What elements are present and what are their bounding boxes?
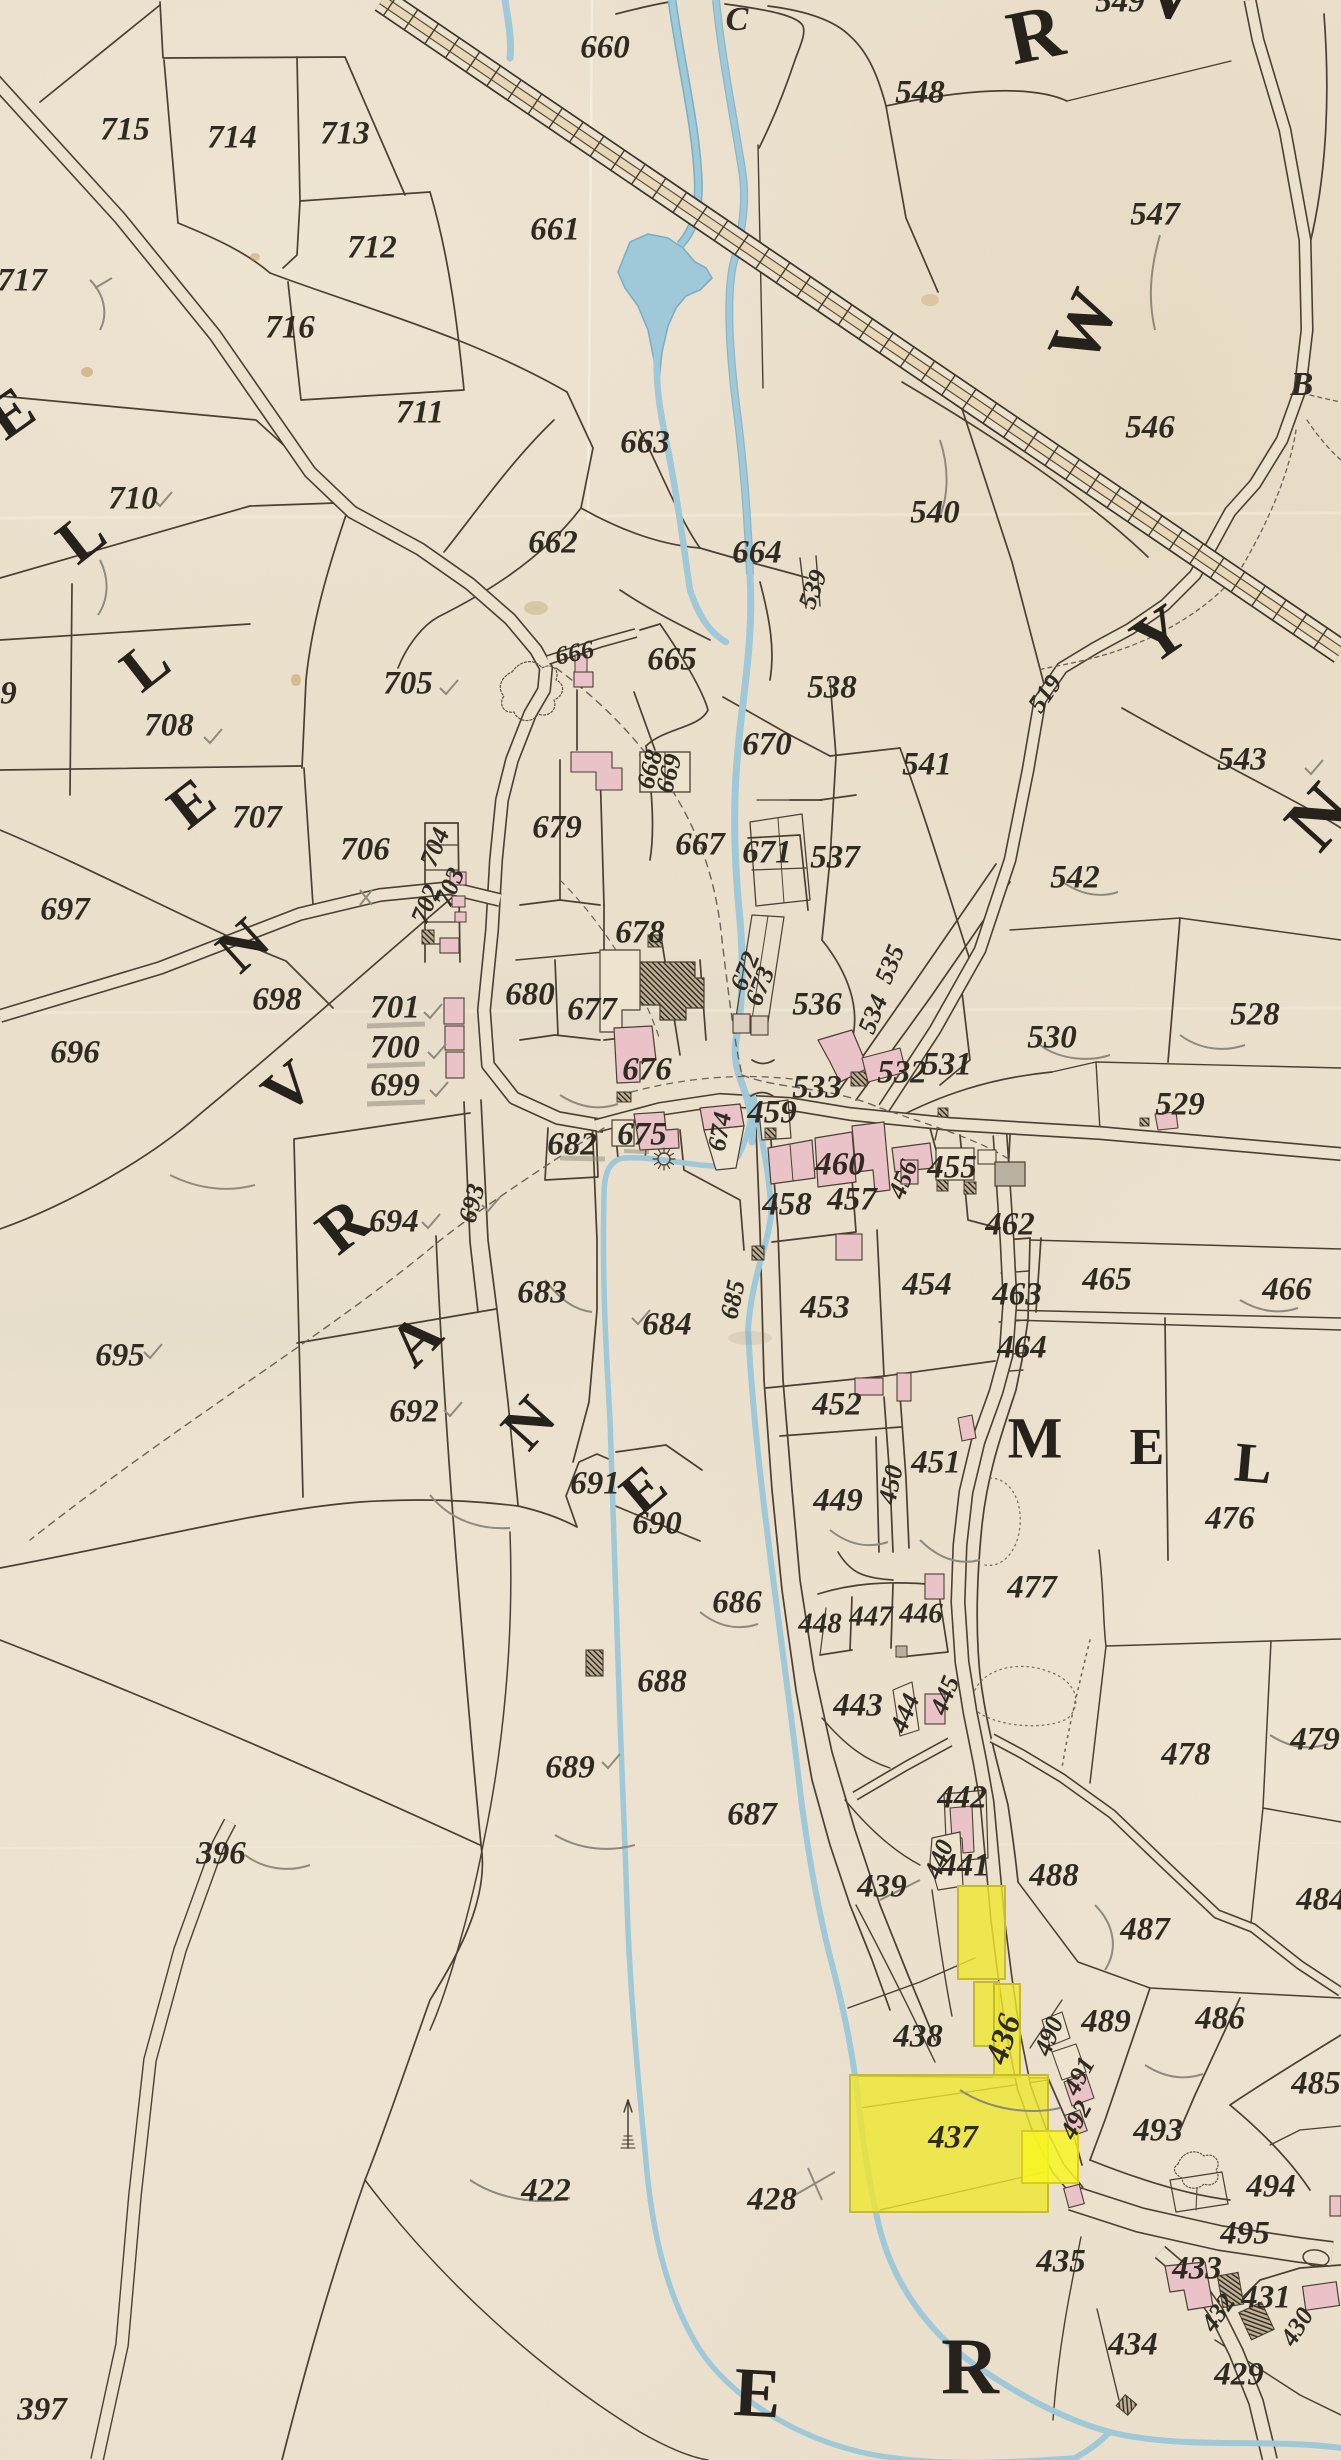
svg-text:698: 698 <box>252 982 302 1018</box>
svg-text:696: 696 <box>50 1035 100 1071</box>
svg-text:547: 547 <box>1130 197 1181 233</box>
svg-text:L: L <box>1232 1431 1275 1496</box>
svg-text:686: 686 <box>712 1585 762 1621</box>
svg-text:541: 541 <box>902 747 952 783</box>
svg-text:717: 717 <box>0 263 48 299</box>
svg-text:663: 663 <box>620 425 670 461</box>
svg-text:667: 667 <box>675 827 726 863</box>
svg-text:542: 542 <box>1050 860 1100 896</box>
svg-text:660: 660 <box>580 30 630 66</box>
svg-text:484: 484 <box>1295 1882 1341 1918</box>
svg-text:452: 452 <box>811 1387 862 1423</box>
svg-text:437: 437 <box>927 2120 979 2156</box>
svg-text:543: 543 <box>1217 742 1267 778</box>
svg-text:549: 549 <box>1095 0 1145 20</box>
svg-text:465: 465 <box>1081 1262 1132 1298</box>
svg-text:684: 684 <box>642 1307 692 1343</box>
svg-text:699: 699 <box>370 1068 420 1104</box>
svg-text:687: 687 <box>727 1797 778 1833</box>
svg-text:530: 530 <box>1027 1020 1077 1056</box>
svg-text:428: 428 <box>746 2182 797 2218</box>
svg-text:478: 478 <box>1160 1737 1211 1773</box>
svg-text:451: 451 <box>910 1445 961 1481</box>
svg-text:529: 529 <box>1155 1087 1205 1123</box>
svg-text:433: 433 <box>1171 2251 1222 2287</box>
svg-text:459: 459 <box>746 1095 797 1131</box>
svg-text:464: 464 <box>996 1330 1047 1366</box>
svg-text:661: 661 <box>530 212 580 248</box>
svg-text:448: 448 <box>797 1608 842 1640</box>
svg-text:678: 678 <box>615 915 665 951</box>
svg-text:V: V <box>1138 0 1203 38</box>
svg-text:688: 688 <box>637 1664 687 1700</box>
svg-text:B: B <box>1290 366 1314 403</box>
svg-text:438: 438 <box>892 2019 943 2055</box>
svg-text:463: 463 <box>991 1277 1042 1313</box>
svg-text:422: 422 <box>520 2173 571 2209</box>
svg-text:533: 533 <box>792 1070 842 1106</box>
svg-text:489: 489 <box>1080 2004 1131 2040</box>
svg-text:439: 439 <box>856 1869 907 1905</box>
svg-text:683: 683 <box>517 1275 567 1311</box>
svg-text:700: 700 <box>370 1030 420 1066</box>
svg-text:537: 537 <box>810 840 861 876</box>
svg-text:705: 705 <box>383 666 433 702</box>
svg-text:712: 712 <box>347 230 397 266</box>
svg-text:429: 429 <box>1213 2357 1264 2393</box>
svg-text:671: 671 <box>742 835 792 871</box>
svg-text:E: E <box>1130 1419 1165 1476</box>
svg-text:479: 479 <box>1289 1722 1340 1758</box>
svg-text:485: 485 <box>1290 2066 1341 2102</box>
svg-text:689: 689 <box>545 1750 595 1786</box>
svg-text:679: 679 <box>532 810 582 846</box>
svg-text:531: 531 <box>922 1047 972 1083</box>
svg-text:707: 707 <box>232 800 283 836</box>
svg-text:532: 532 <box>877 1055 927 1091</box>
svg-text:M: M <box>1008 1405 1063 1470</box>
svg-text:462: 462 <box>984 1207 1035 1243</box>
svg-text:709: 709 <box>0 676 17 712</box>
svg-text:435: 435 <box>1035 2244 1086 2280</box>
svg-text:675: 675 <box>617 1117 667 1153</box>
svg-text:443: 443 <box>832 1688 883 1724</box>
svg-text:460: 460 <box>814 1147 865 1183</box>
svg-text:708: 708 <box>144 708 194 744</box>
svg-text:449: 449 <box>812 1483 863 1519</box>
svg-text:670: 670 <box>742 727 792 763</box>
svg-text:R: R <box>941 2323 1000 2411</box>
svg-text:447: 447 <box>848 1601 894 1633</box>
svg-text:706: 706 <box>340 832 390 868</box>
svg-text:495: 495 <box>1219 2216 1270 2252</box>
svg-text:662: 662 <box>528 525 578 561</box>
svg-text:546: 546 <box>1125 410 1175 446</box>
svg-text:466: 466 <box>1261 1272 1312 1308</box>
svg-text:487: 487 <box>1119 1912 1171 1948</box>
svg-text:C: C <box>726 1 749 38</box>
svg-text:453: 453 <box>799 1290 850 1326</box>
svg-text:710: 710 <box>108 481 158 517</box>
svg-text:454: 454 <box>901 1267 952 1303</box>
svg-text:E: E <box>732 2354 783 2433</box>
svg-text:455: 455 <box>926 1150 977 1186</box>
svg-text:701: 701 <box>370 990 420 1026</box>
svg-text:695: 695 <box>95 1338 145 1374</box>
svg-text:486: 486 <box>1194 2001 1245 2037</box>
svg-text:396: 396 <box>195 1836 246 1872</box>
svg-text:692: 692 <box>389 1394 439 1430</box>
svg-text:434: 434 <box>1107 2327 1158 2363</box>
svg-text:446: 446 <box>898 1598 943 1630</box>
svg-text:677: 677 <box>567 992 618 1028</box>
svg-text:431: 431 <box>1240 2280 1291 2316</box>
svg-text:548: 548 <box>895 75 945 111</box>
svg-text:676: 676 <box>622 1052 672 1088</box>
svg-text:488: 488 <box>1028 1858 1079 1894</box>
svg-text:457: 457 <box>826 1182 878 1218</box>
svg-text:528: 528 <box>1230 997 1280 1033</box>
svg-text:664: 664 <box>732 535 782 571</box>
svg-text:477: 477 <box>1006 1570 1058 1606</box>
svg-text:714: 714 <box>207 120 257 156</box>
svg-text:493: 493 <box>1132 2113 1183 2149</box>
svg-text:494: 494 <box>1245 2169 1296 2205</box>
svg-text:713: 713 <box>320 116 370 152</box>
svg-text:536: 536 <box>792 987 842 1023</box>
svg-text:715: 715 <box>100 112 150 148</box>
svg-text:442: 442 <box>936 1780 987 1816</box>
svg-text:538: 538 <box>807 670 857 706</box>
svg-text:458: 458 <box>761 1187 812 1223</box>
svg-text:711: 711 <box>396 395 444 431</box>
svg-text:540: 540 <box>910 495 960 531</box>
svg-text:476: 476 <box>1204 1501 1255 1537</box>
svg-text:665: 665 <box>647 642 697 678</box>
svg-text:397: 397 <box>16 2392 68 2428</box>
svg-text:680: 680 <box>505 977 555 1013</box>
svg-text:697: 697 <box>40 892 91 928</box>
svg-text:716: 716 <box>265 310 315 346</box>
